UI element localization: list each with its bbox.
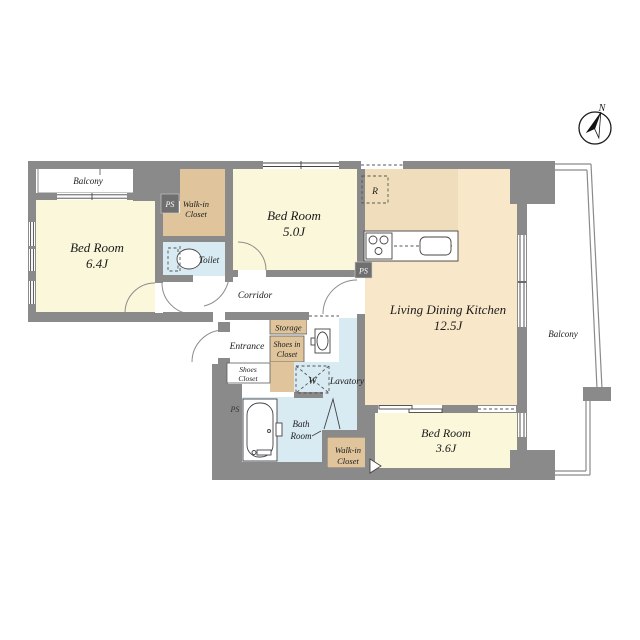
window-bed3-right [518, 413, 526, 437]
bath-label-1: Bath [293, 419, 310, 429]
bed2-area: 5.0J [283, 224, 306, 239]
kitchen-counter [364, 231, 458, 261]
kitchen-sink [420, 237, 451, 255]
wall-entrance-top [225, 312, 309, 320]
ldk-door-gap [357, 278, 365, 314]
storage-folding-door [309, 312, 339, 320]
bed1-area: 6.4J [86, 256, 109, 271]
ps-label-1: PS [165, 200, 175, 209]
ps-label-3: PS [230, 405, 240, 414]
shoes-closet-label-1: Shoes [239, 365, 257, 374]
wall-ldk-left-lower [357, 314, 365, 430]
walkin-top-label-2: Closet [185, 209, 207, 219]
walkin-top-label-1: Walk-in [183, 199, 209, 209]
wall-bed2-bottom-b [266, 270, 365, 277]
shoes-closet-label-2: Closet [238, 374, 258, 383]
bath-faucet [257, 450, 271, 455]
ldk-door-arc [323, 280, 357, 314]
bed1-name: Bed Room [70, 240, 124, 255]
wall-toilet-top [155, 236, 233, 242]
north-label: N [598, 103, 607, 114]
shoes-in-closet-label-1: Shoes in [274, 340, 301, 349]
balcony-top-label: Balcony [73, 176, 103, 186]
window-right-1 [518, 235, 526, 281]
wall-top-right-block [510, 161, 555, 204]
window-left-1 [29, 222, 35, 246]
window-left-3 [29, 281, 35, 304]
bed2-name: Bed Room [267, 208, 321, 223]
window-bed2-top [263, 161, 339, 169]
bed3-dashed-opening [478, 406, 516, 412]
refrigerator-label: R [371, 187, 378, 197]
wall-walkin-bottom-left [322, 437, 327, 468]
window-left-2 [29, 249, 35, 271]
bed3-sliding-door [378, 405, 442, 413]
ldk-name: Living Dining Kitchen [389, 302, 506, 317]
storage-label: Storage [275, 323, 302, 333]
shoes-in-closet-label-2: Closet [277, 350, 298, 359]
corridor-label: Corridor [238, 291, 273, 301]
walkin-bottom-label-2: Closet [337, 456, 359, 466]
lavatory-floor-1 [339, 318, 357, 362]
wall-toilet-bottom [155, 275, 193, 282]
bathtub [243, 399, 282, 461]
bath-label-2: Room [290, 431, 312, 441]
closet-column-floor [270, 362, 294, 392]
ps-label-2: PS [358, 267, 368, 276]
ldk-area: 12.5J [434, 318, 464, 333]
balcony-right-block [583, 387, 611, 401]
bed3-name: Bed Room [421, 426, 471, 440]
floor-plan: N Balcony Bed Room 6.4J Walk-in Closet T… [0, 0, 640, 640]
window-right-2 [518, 282, 526, 327]
window-kitchen-top [361, 161, 403, 169]
balcony-right-label: Balcony [548, 329, 578, 339]
entrance-label: Entrance [229, 342, 265, 352]
wall-bottom-band [322, 468, 555, 480]
lavatory-label: Lavatory [329, 377, 365, 387]
entrance-door-gap [216, 332, 230, 358]
wall-closet-right [225, 161, 233, 282]
wall-bed2-bottom-a [233, 270, 238, 277]
bed3-area: 3.6J [435, 441, 457, 455]
toilet-label: Toilet [199, 255, 220, 265]
walkin-bottom-label-1: Walk-in [335, 445, 361, 455]
window-balcony-top [57, 193, 127, 200]
compass: N [579, 103, 611, 144]
toilet-door-arc [162, 283, 193, 314]
